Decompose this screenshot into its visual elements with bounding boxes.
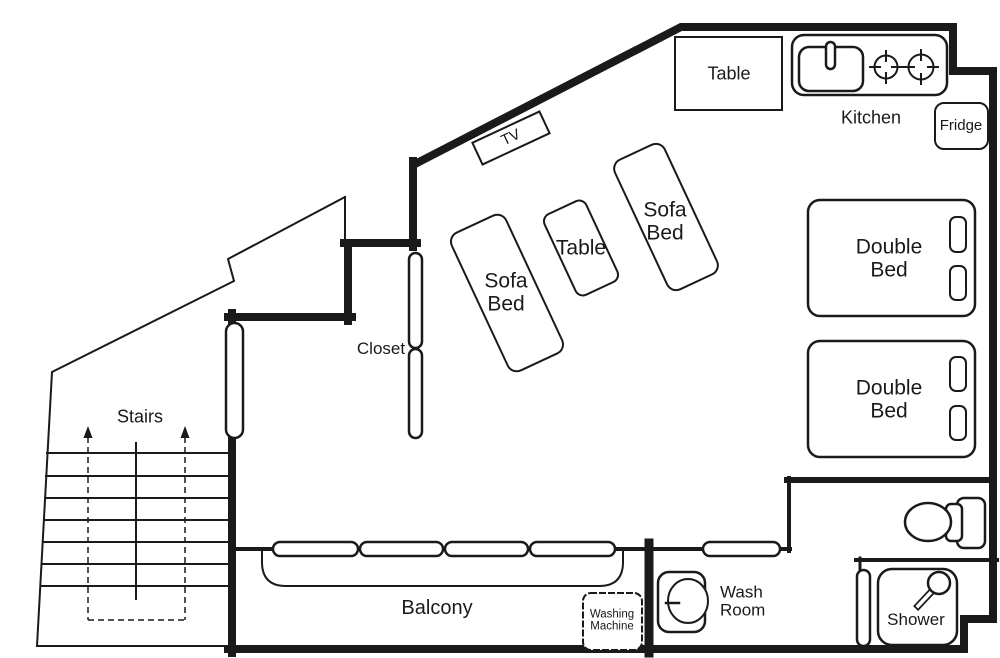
toilet-shape [905, 498, 985, 548]
shower-door [857, 570, 870, 646]
toilet-bowl [905, 503, 951, 541]
pillow [950, 217, 966, 252]
shower-head [928, 572, 950, 594]
washing-machine-shape [583, 593, 642, 650]
pillow [950, 357, 966, 391]
kitchen-counter [792, 35, 947, 95]
stairs-outline [37, 197, 345, 646]
stairs-area [37, 197, 345, 646]
double-bed-lower-shape [808, 341, 975, 457]
balcony-door [445, 542, 528, 556]
floor-plan-drawing [0, 0, 1000, 658]
sofa-bed-left-shape [448, 211, 567, 374]
double-bed-upper-shape [808, 200, 975, 316]
dining-table-shape [675, 37, 782, 110]
floor-plan: Table Kitchen Fridge TV Sofa Bed Table S… [0, 0, 1000, 658]
closet-door [409, 253, 422, 348]
wash-basin-shape [658, 572, 708, 632]
stairs-up-arrow [84, 426, 93, 438]
balcony-door [273, 542, 358, 556]
shower-shape [878, 569, 957, 645]
kitchen-faucet [826, 42, 835, 69]
pillow [950, 266, 966, 300]
washroom-door [703, 542, 780, 556]
balcony-door [360, 542, 443, 556]
fridge-shape [935, 103, 988, 149]
sofa-bed-right-shape [611, 141, 721, 294]
closet-door [409, 349, 422, 438]
living-table-shape [541, 198, 620, 298]
balcony-door [530, 542, 615, 556]
stairs-door [226, 323, 243, 438]
pillow [950, 406, 966, 440]
stairs-up-arrow [181, 426, 190, 438]
tv-shape [472, 111, 549, 164]
